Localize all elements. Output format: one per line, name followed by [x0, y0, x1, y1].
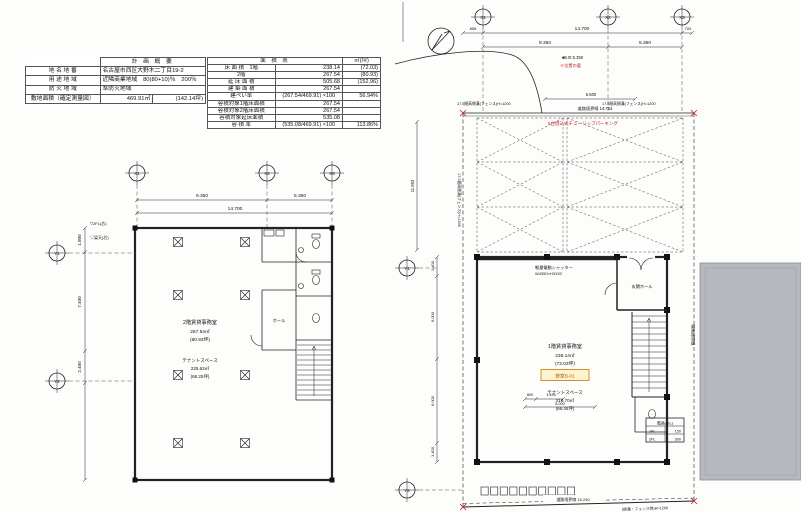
- fence-label-bottom: (側溝・フェンス等)H=1200: [622, 505, 668, 512]
- shutter-label: 軽量電動シャッター: [535, 264, 573, 271]
- building-outline-2f: [133, 226, 335, 483]
- row-tsubo: (72.03): [343, 65, 381, 72]
- level-table-header: 階高(GL): [657, 419, 674, 425]
- row-label: 延 床 面 積: [208, 79, 276, 86]
- row-value: 準防火地域: [100, 85, 206, 94]
- row-extra: (142.14坪): [153, 94, 206, 103]
- entrance-hall-label: 玄関ホール: [632, 283, 653, 290]
- row-tsubo: 56.94%: [343, 93, 381, 100]
- grid-label: Y2: [404, 488, 410, 493]
- row-tsubo: (80.93): [343, 72, 381, 79]
- grid-marker-y2: Y2: [45, 369, 135, 393]
- room-title: 1階賃貸事務室: [548, 342, 582, 350]
- row-tsubo: 113.86%: [343, 121, 381, 128]
- dim-label: 7.400: [77, 296, 82, 308]
- table-row: 容 積 率(535.08/469.91) ×100113.86%: [208, 121, 381, 128]
- row-tsubo: [343, 86, 381, 93]
- area-table: 面 積 表 ㎡(坪) 床 面 積 1階238.14(72.03) 2階267.5…: [207, 57, 381, 129]
- table-row: 床 面 積 1階238.14(72.03): [208, 65, 381, 72]
- tenant-title: テナントスペース: [182, 358, 218, 364]
- road-boundary-top-label: 道路境界線 14.754: [578, 105, 614, 112]
- position-note: ※位置の要: [560, 62, 581, 69]
- room-area: 238.14㎡: [555, 352, 575, 359]
- row-value: 535.08: [275, 114, 343, 121]
- row-value: (267.54/469.91) ×100: [275, 93, 343, 100]
- table-row: 容積対象延床面積535.08: [208, 114, 381, 121]
- interior-partitions-2f: [262, 228, 332, 400]
- row-label: 建ぺい率: [208, 93, 276, 100]
- staircase-2f: [297, 345, 331, 396]
- dim-label: 1.455: [546, 393, 556, 397]
- tenant-tsubo: (66.45坪): [556, 405, 575, 412]
- dim-label: 9.350: [539, 40, 551, 46]
- summary-title: 計 画 概 要: [100, 58, 206, 67]
- row-value: 267.54: [275, 86, 343, 93]
- grid-label: X1: [134, 171, 140, 176]
- grid-label: X2: [264, 171, 270, 176]
- table-row: 敷地面積（確定測量図） 469.91㎡ (142.14坪): [26, 94, 206, 103]
- dim-label: 6.000: [430, 395, 435, 406]
- table-row: 容積対象2階床面積267.54: [208, 107, 381, 114]
- table-row: 防 火 地 域 準防火地域: [26, 85, 206, 94]
- site-plan-1f: X1 X2 X3 Y1 Y2: [395, 0, 801, 513]
- table-row: 建ぺい率(267.54/469.91) ×10056.94%: [208, 93, 381, 100]
- row-tsubo: (152.96): [343, 79, 381, 86]
- dim-label: 14.700: [228, 206, 243, 212]
- dim-label: 1.400: [430, 260, 435, 271]
- table-row: 面 積 表 ㎡(坪): [208, 58, 381, 65]
- grid-marker-x2: X2: [255, 161, 279, 185]
- grid-marker-x2: X2: [596, 5, 620, 29]
- grid-stems: [483, 29, 682, 113]
- dim-label: 11.953: [410, 179, 415, 192]
- grid-label: X2: [605, 15, 611, 20]
- dimension-left-vertical: 1.400 6.000 6.000 1.400: [430, 255, 439, 464]
- road-boundary-bottom-label: 道路境界線 15.240: [556, 496, 590, 502]
- table-row: 計 画 概 要: [26, 58, 206, 67]
- dimension-horizontal: 9.350 5.350 14.700: [135, 193, 334, 215]
- fence-label-top-left: 17.5間高側溝(フェンス)H=1200: [457, 101, 511, 106]
- grid-marker-y1: Y1: [45, 241, 135, 265]
- room-area: 267.54㎡: [190, 328, 210, 335]
- fence-label-top-right: 17.5間高側溝(フェンス)H=1200: [602, 101, 656, 106]
- dim-label: 5.350: [639, 40, 651, 46]
- dim-label: 1.800: [77, 234, 82, 246]
- row-value: 267.54: [275, 107, 343, 114]
- dim-label: 700: [685, 26, 692, 31]
- table-row: 用 途 地 域 近隣商業地域 80(80+10)％ 200％: [26, 76, 206, 85]
- dimension-11953: 11.953: [410, 120, 419, 252]
- hall-label: ホール: [273, 318, 286, 323]
- level-row-label: 2FL: [649, 437, 656, 441]
- restroom-1f: [635, 397, 667, 432]
- grid-label: Y1: [54, 251, 60, 256]
- table-row: 地 名 地 番 名古屋市西区大野木二丁目19-2: [26, 67, 206, 76]
- grid-marker-x1: X1: [125, 161, 149, 185]
- row-label: 容 積 率: [208, 121, 276, 128]
- row-label: 容積対象2階床面積: [208, 107, 276, 114]
- row-value: 505.68: [275, 79, 343, 86]
- tulip-parking-label: 5台借込式チューリップパーキング: [548, 120, 618, 127]
- row-label: 地 名 地 番: [26, 67, 101, 76]
- neighbor-boundary-label: 隣地境界線: [690, 325, 697, 347]
- drawing-sheet: 計 画 概 要 地 名 地 番 名古屋市西区大野木二丁目19-2 用 途 地 域…: [0, 0, 801, 513]
- grid-marker-y2: Y2: [395, 478, 463, 502]
- row-tsubo: [343, 100, 381, 107]
- parking-stalls: [477, 118, 683, 252]
- entrance-lobby: 玄関ホール: [605, 254, 667, 310]
- level-label: ▽梁天(芯): [90, 234, 109, 240]
- dim-label: 6.000: [430, 311, 435, 322]
- row-label: 敷地面積（確定測量図）: [26, 94, 101, 103]
- table-row: 2階267.54(80.93): [208, 72, 381, 79]
- row-value: 238.14: [275, 65, 343, 72]
- tenant-area: 225.63㎡: [191, 365, 210, 371]
- room-labels-1f: 1階賃貸事務室 238.14㎡ (72.03坪) 貸室B-01 テナントスペース…: [541, 342, 589, 412]
- staircase-1f: [632, 312, 667, 397]
- grid-label: X3: [679, 15, 685, 20]
- row-label: 用 途 地 域: [26, 76, 101, 85]
- row-value: 267.54: [275, 72, 343, 79]
- room-tsubo: (80.93坪): [190, 336, 210, 343]
- table-row: 容積対象1階床面積267.54: [208, 100, 381, 107]
- level-label: ▽2FL(芯): [90, 220, 107, 226]
- grid-label: X3: [329, 171, 335, 176]
- room-title: 2階賃貸事務室: [183, 318, 217, 326]
- north-arrow-icon: [428, 28, 454, 54]
- road-edge: 道路境界線 14.754: [395, 51, 694, 116]
- dimension-6500: 6.500: [543, 92, 637, 101]
- row-tsubo: [343, 107, 381, 114]
- area-title: 面 積 表: [208, 58, 343, 65]
- dim-label: 6.500: [586, 92, 597, 97]
- neighbor-building: [700, 263, 801, 480]
- dim-label: 5.000: [555, 402, 565, 406]
- row-label: 容積対象延床面積: [208, 114, 276, 121]
- floor-plan-2f: X1 X2 X3 Y1 Y2: [30, 150, 365, 513]
- dim-label: 855: [470, 26, 477, 31]
- empty-cell: [26, 58, 101, 67]
- column-markers-2f: [174, 238, 250, 448]
- dim-label: 9.350: [196, 193, 208, 199]
- grid-label: Y1: [404, 266, 410, 271]
- row-value: 名古屋市西区大野木二丁目19-2: [100, 67, 206, 76]
- row-value: (535.08/469.91) ×100: [275, 121, 343, 128]
- row-value: 近隣商業地域 80(80+10)％ 200％: [100, 76, 206, 85]
- bicycle-racks: [481, 487, 575, 495]
- table-row: 延 床 面 積505.68(152.96): [208, 79, 381, 86]
- dim-label: 800: [527, 393, 533, 397]
- row-value: 267.54: [275, 100, 343, 107]
- row-label: 容積対象1階床面積: [208, 100, 276, 107]
- room-tsubo: (72.03坪): [555, 360, 575, 367]
- row-label: 建 築 面 積: [208, 86, 276, 93]
- dimension-vertical: 1.800 7.400 2.400 ▽2FL(芯) ▽梁天(芯): [77, 220, 109, 482]
- dim-label: 5.350: [294, 193, 306, 199]
- grid-marker-x3: X3: [320, 161, 344, 185]
- room-labels-2f: 2階賃貸事務室 267.54㎡ (80.93坪) テナントスペース 225.63…: [182, 318, 285, 380]
- level-row-label: 1FL: [649, 429, 656, 433]
- row-tsubo: [343, 114, 381, 121]
- grid-label: X1: [480, 15, 486, 20]
- grid-label: Y2: [54, 379, 60, 384]
- plan-summary-table: 計 画 概 要 地 名 地 番 名古屋市西区大野木二丁目19-2 用 途 地 域…: [25, 57, 206, 104]
- dimension-top: 855 14.700 700 9.350 5.350: [461, 26, 694, 49]
- tenant-tsubo: (68.25坪): [191, 373, 210, 380]
- table-row: 建 築 面 積267.54: [208, 86, 381, 93]
- row-label: 防 火 地 域: [26, 85, 101, 94]
- load-note: ■5.0t 5.350: [562, 55, 584, 60]
- fence-label-left: 17.5間高側溝(フェンス)H=1200: [457, 173, 462, 227]
- shutter-size-label: W4350×H3150: [535, 271, 563, 276]
- toilet-fixtures: [251, 230, 320, 346]
- row-label: 床 面 積 1階: [208, 65, 276, 72]
- level-table: 階高(GL) 1FL 150 2FL 300: [646, 418, 684, 442]
- level-row-value: 300: [675, 437, 681, 441]
- area-unit-header: ㎡(坪): [343, 58, 381, 65]
- dim-label: 1.400: [430, 446, 435, 457]
- dim-label: 2.400: [77, 361, 82, 373]
- level-row-value: 150: [675, 429, 681, 433]
- unit-tag-label: 貸室B-01: [555, 373, 575, 380]
- row-value: 469.91㎡: [100, 94, 153, 103]
- row-label: 2階: [208, 72, 276, 79]
- dim-label: 14.700: [575, 26, 590, 32]
